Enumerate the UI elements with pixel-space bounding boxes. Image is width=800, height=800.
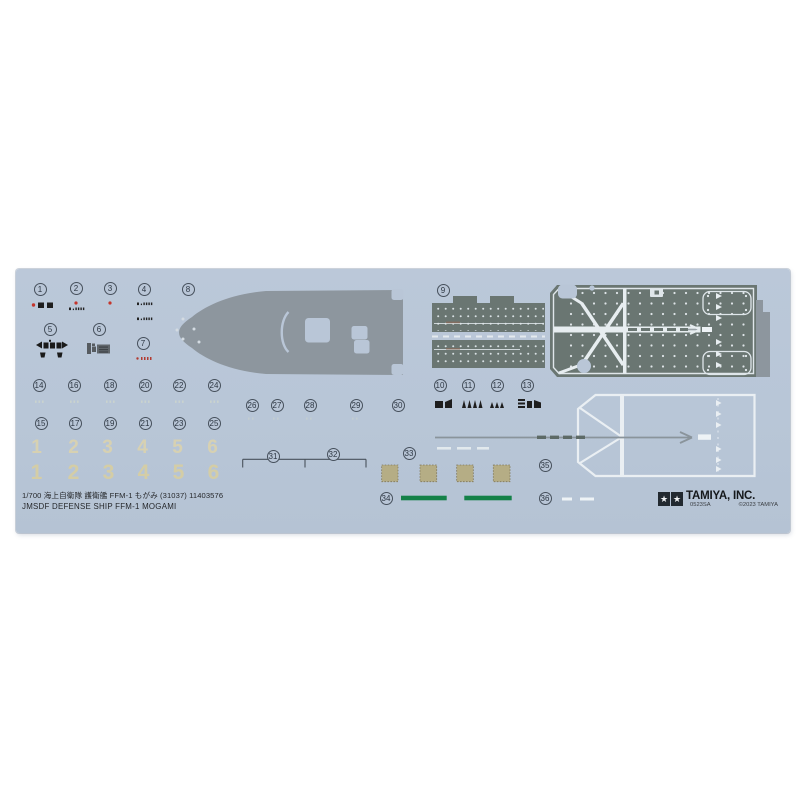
decal-7-marks (136, 357, 151, 360)
part-number-marker-3: 3 (104, 282, 117, 295)
caption-japanese: 1/700 海上自衛隊 護衛艦 FFM-1 もがみ (31037) 114035… (22, 490, 223, 501)
part-number-marker-19: 19 (104, 417, 117, 430)
part-number-marker-16: 16 (68, 379, 81, 392)
part-number-marker-13: 13 (521, 379, 534, 392)
draft-number-decal: 6 (207, 437, 219, 459)
part-number-marker-5: 5 (44, 323, 57, 336)
part-number-marker-17: 17 (69, 417, 82, 430)
star-icon: ★ (671, 492, 683, 506)
draft-number-decal: 4 (137, 437, 149, 459)
part-number-marker-21: 21 (139, 417, 152, 430)
part-number-marker-29: 29 (350, 399, 363, 412)
tamiya-twin-star-logo: ★ ★ (658, 492, 684, 506)
part-number-marker-2: 2 (70, 282, 83, 295)
part-number-marker-22: 22 (173, 379, 186, 392)
draft-number-decal: 5 (173, 461, 186, 485)
draft-number-decal: 2 (68, 437, 80, 459)
part-number-marker-25: 25 (208, 417, 221, 430)
white-dash-decals (562, 498, 594, 501)
khaki-square-decals (382, 465, 510, 482)
part-number-marker-15: 15 (35, 417, 48, 430)
part-number-marker-34: 34 (380, 492, 393, 505)
brand-copyright: ©2023 TAMIYA (739, 502, 778, 508)
part-number-marker-31: 31 (267, 450, 280, 463)
bow-deck-decal (176, 289, 404, 375)
draft-number-decal: 3 (103, 461, 116, 485)
product-photo-page: { "page": { "background": "#ffffff" }, "… (0, 0, 800, 800)
part-number-marker-28: 28 (304, 399, 317, 412)
brand-code: 0523SA (690, 502, 711, 508)
part-number-marker-7: 7 (137, 337, 150, 350)
part-number-marker-36: 36 (539, 492, 552, 505)
part-number-marker-12: 12 (491, 379, 504, 392)
star-icon: ★ (658, 492, 670, 506)
part-number-marker-24: 24 (208, 379, 221, 392)
part-number-marker-1: 1 (34, 283, 47, 296)
flight-deck-outline-decal (578, 395, 755, 476)
green-bar-decals (401, 496, 512, 501)
part-number-marker-18: 18 (104, 379, 117, 392)
tamiya-brand-block: ★ ★ TAMIYA, INC. 0523SA ©2023 TAMIYA (658, 490, 778, 508)
part-number-marker-11: 11 (462, 379, 475, 392)
draft-number-decal: 1 (31, 461, 44, 485)
decal-sheet: 1234567891011121314151617181920212223242… (16, 269, 790, 533)
draft-number-decal: 2 (68, 461, 81, 485)
flight-deck-decal (550, 285, 770, 378)
part-number-marker-6: 6 (93, 323, 106, 336)
part-number-marker-35: 35 (539, 459, 552, 472)
sheet-caption: 1/700 海上自衛隊 護衛艦 FFM-1 もがみ (31037) 114035… (22, 490, 223, 511)
midship-deck-decal (432, 296, 545, 368)
draft-number-decal: 5 (172, 437, 184, 459)
draft-number-decal: 4 (138, 461, 151, 485)
caption-english: JMSDF DEFENSE SHIP FFM-1 MOGAMI (22, 502, 223, 511)
part-number-marker-26: 26 (246, 399, 259, 412)
decal-5-cluster (36, 340, 68, 358)
draft-number-decal: 3 (102, 437, 114, 459)
draft-number-decal: 6 (208, 461, 221, 485)
bracket-31-32 (243, 459, 366, 467)
deck-arrow-marks (716, 293, 722, 368)
part-number-marker-27: 27 (271, 399, 284, 412)
part-number-marker-4: 4 (138, 283, 151, 296)
part-number-marker-14: 14 (33, 379, 46, 392)
brand-name: TAMIYA, INC. (686, 490, 778, 502)
part-number-marker-8: 8 (182, 283, 195, 296)
part-number-marker-30: 30 (392, 399, 405, 412)
draft-number-decal: 1 (31, 437, 43, 459)
small-decals-10-to-13 (435, 399, 541, 408)
part-number-marker-23: 23 (173, 417, 186, 430)
decal-6-equipment (87, 343, 110, 354)
antenna-mast-decal (435, 432, 711, 450)
part-number-marker-9: 9 (437, 284, 450, 297)
part-number-marker-32: 32 (327, 448, 340, 461)
part-number-marker-20: 20 (139, 379, 152, 392)
part-number-marker-33: 33 (403, 447, 416, 460)
part-number-marker-10: 10 (434, 379, 447, 392)
